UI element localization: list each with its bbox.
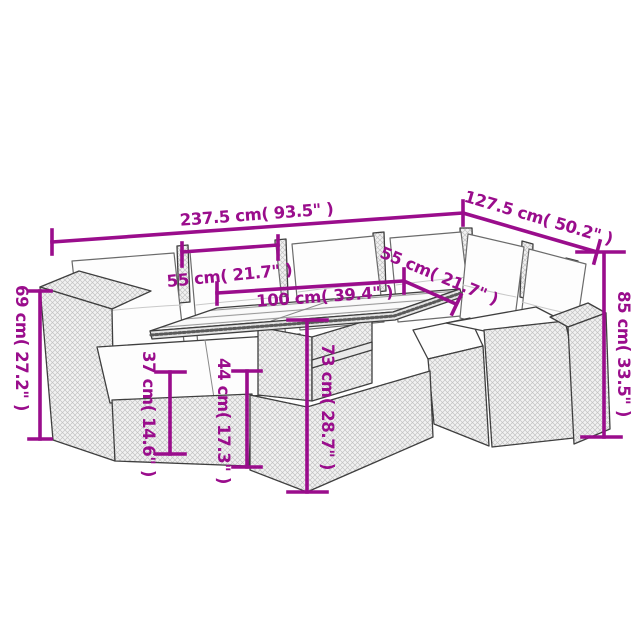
dim-label-backrest-height: 85 cm( 33.5" ) bbox=[614, 291, 633, 417]
dim-label-seat-to-tabletop-height: 44 cm( 17.3" ) bbox=[214, 358, 233, 484]
dim-label-table-height: 73 cm( 28.7" ) bbox=[318, 344, 337, 470]
table-base-left bbox=[250, 395, 307, 492]
table-pedestal-left bbox=[258, 327, 312, 401]
dim-label-armrest-height: 69 cm( 27.2" ) bbox=[12, 285, 31, 411]
dimension-diagram: 237.5 cm( 93.5" ) 127.5 cm( 50.2" ) 55 c… bbox=[0, 0, 640, 640]
product-dimension-image: 237.5 cm( 93.5" ) 127.5 cm( 50.2" ) 55 c… bbox=[0, 0, 640, 640]
corner-seat-base bbox=[428, 346, 489, 446]
dim-label-seat-height: 37 cm( 14.6" ) bbox=[139, 351, 158, 477]
